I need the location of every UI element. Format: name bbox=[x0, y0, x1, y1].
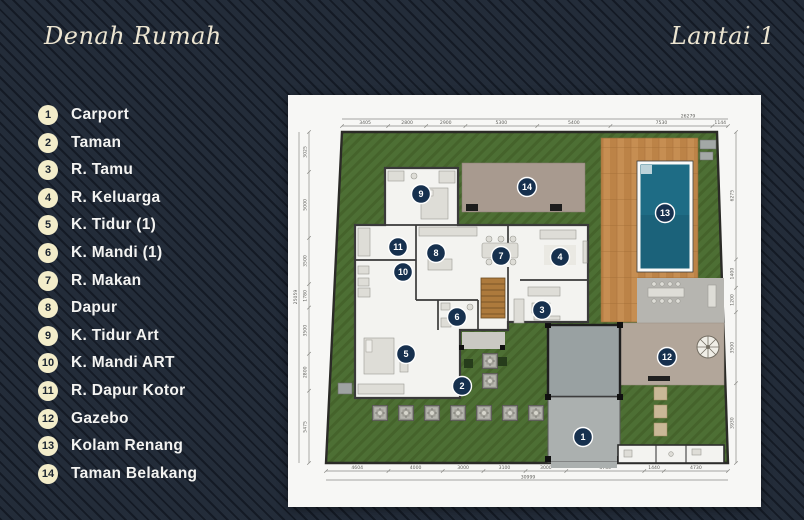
legend-label: R. Dapur Kotor bbox=[71, 382, 185, 400]
legend-label: R. Tamu bbox=[71, 161, 133, 179]
svg-text:2800: 2800 bbox=[303, 366, 309, 378]
svg-text:11: 11 bbox=[393, 242, 403, 252]
svg-text:4000: 4000 bbox=[410, 465, 422, 471]
svg-text:6: 6 bbox=[454, 312, 459, 322]
legend-item-8: 8Dapur bbox=[38, 298, 197, 318]
legend-number-badge: 1 bbox=[38, 105, 58, 125]
floor-label: Lantai 1 bbox=[671, 22, 775, 50]
legend-label: Taman bbox=[71, 134, 121, 152]
room-marker-14: 14 bbox=[518, 178, 537, 197]
legend-number-badge: 11 bbox=[38, 381, 58, 401]
svg-text:5475: 5475 bbox=[303, 421, 309, 433]
svg-text:5000: 5000 bbox=[303, 199, 309, 211]
page-background: Denah Rumah Lantai 1 1Carport2Taman3R. T… bbox=[0, 0, 804, 520]
legend-item-13: 13Kolam Renang bbox=[38, 436, 197, 456]
legend-label: Taman Belakang bbox=[71, 465, 197, 483]
legend-label: Carport bbox=[71, 106, 129, 124]
garage bbox=[548, 325, 620, 397]
svg-text:3930: 3930 bbox=[730, 417, 736, 429]
floor-plan: 3405280029005300540075301144262794604400… bbox=[288, 95, 761, 507]
room-marker-7: 7 bbox=[492, 247, 511, 266]
room-marker-5: 5 bbox=[397, 345, 416, 364]
legend-label: K. Tidur Art bbox=[71, 327, 159, 345]
floor-plan-sheet: 3405280029005300540075301144262794604400… bbox=[288, 95, 761, 507]
svg-text:4730: 4730 bbox=[690, 465, 702, 471]
legend-item-6: 6K. Mandi (1) bbox=[38, 243, 197, 263]
gazebo-icon bbox=[697, 336, 719, 358]
planter-box bbox=[466, 204, 478, 211]
legend-label: Gazebo bbox=[71, 410, 129, 428]
room-marker-13: 13 bbox=[656, 204, 675, 223]
svg-text:5: 5 bbox=[403, 349, 408, 359]
entrance-porch bbox=[459, 332, 505, 350]
legend-label: R. Makan bbox=[71, 272, 141, 290]
legend-number-badge: 10 bbox=[38, 353, 58, 373]
svg-text:1200: 1200 bbox=[730, 294, 736, 306]
legend-item-7: 7R. Makan bbox=[38, 271, 197, 291]
staircase bbox=[481, 278, 505, 318]
legend-number-badge: 2 bbox=[38, 133, 58, 153]
room-marker-2: 2 bbox=[453, 377, 472, 396]
legend-number-badge: 9 bbox=[38, 326, 58, 346]
legend-number-badge: 8 bbox=[38, 298, 58, 318]
legend-number-badge: 5 bbox=[38, 215, 58, 235]
svg-text:3000: 3000 bbox=[540, 465, 552, 471]
legend-item-4: 4R. Keluarga bbox=[38, 188, 197, 208]
legend-item-1: 1Carport bbox=[38, 105, 197, 125]
legend-item-11: 11R. Dapur Kotor bbox=[38, 381, 197, 401]
svg-text:3500: 3500 bbox=[730, 342, 736, 354]
svg-text:1440: 1440 bbox=[648, 465, 660, 471]
svg-text:4: 4 bbox=[557, 252, 562, 262]
svg-text:3100: 3100 bbox=[499, 465, 511, 471]
legend-item-3: 3R. Tamu bbox=[38, 160, 197, 180]
svg-text:3: 3 bbox=[539, 305, 544, 315]
legend-item-9: 9K. Tidur Art bbox=[38, 326, 197, 346]
svg-text:1: 1 bbox=[580, 432, 585, 442]
svg-text:3025: 3025 bbox=[303, 146, 309, 158]
svg-text:7530: 7530 bbox=[656, 120, 668, 126]
legend-item-14: 14Taman Belakang bbox=[38, 464, 197, 484]
legend-number-badge: 14 bbox=[38, 464, 58, 484]
svg-text:2: 2 bbox=[459, 381, 464, 391]
room-marker-12: 12 bbox=[658, 348, 677, 367]
terrace-walkway bbox=[637, 278, 724, 323]
room-marker-9: 9 bbox=[412, 185, 431, 204]
svg-text:30999: 30999 bbox=[521, 475, 536, 481]
svg-text:13: 13 bbox=[660, 208, 670, 218]
room-marker-3: 3 bbox=[533, 301, 552, 320]
svg-text:7: 7 bbox=[498, 251, 503, 261]
svg-text:25059: 25059 bbox=[293, 290, 299, 305]
svg-text:5300: 5300 bbox=[495, 120, 507, 126]
pool-steps bbox=[641, 165, 652, 174]
legend-label: K. Mandi (1) bbox=[71, 244, 162, 262]
legend-number-badge: 6 bbox=[38, 243, 58, 263]
legend-label: R. Keluarga bbox=[71, 189, 160, 207]
svg-text:9: 9 bbox=[418, 189, 423, 199]
legend-number-badge: 12 bbox=[38, 409, 58, 429]
legend-label: Kolam Renang bbox=[71, 437, 183, 455]
svg-text:1400: 1400 bbox=[730, 268, 736, 280]
svg-text:3405: 3405 bbox=[359, 120, 371, 126]
svg-text:26279: 26279 bbox=[681, 114, 696, 120]
svg-text:14: 14 bbox=[522, 182, 532, 192]
svg-text:2900: 2900 bbox=[440, 120, 452, 126]
page-title: Denah Rumah bbox=[44, 22, 222, 50]
legend-item-12: 12Gazebo bbox=[38, 409, 197, 429]
legend-number-badge: 7 bbox=[38, 271, 58, 291]
legend-number-badge: 13 bbox=[38, 436, 58, 456]
service-rooms bbox=[618, 445, 724, 463]
legend-item-2: 2Taman bbox=[38, 133, 197, 153]
svg-text:10: 10 bbox=[398, 267, 408, 277]
planter-box bbox=[550, 204, 562, 211]
svg-text:3500: 3500 bbox=[303, 325, 309, 337]
svg-text:3500: 3500 bbox=[303, 255, 309, 267]
room-marker-1: 1 bbox=[574, 428, 593, 447]
garden-path-pads bbox=[654, 387, 667, 436]
legend-item-10: 10K. Mandi ART bbox=[38, 353, 197, 373]
room-marker-10: 10 bbox=[394, 263, 413, 282]
room-marker-4: 4 bbox=[551, 248, 570, 267]
svg-text:1144: 1144 bbox=[714, 120, 726, 126]
legend: 1Carport2Taman3R. Tamu4R. Keluarga5K. Ti… bbox=[38, 105, 197, 484]
legend-label: K. Mandi ART bbox=[71, 354, 175, 372]
legend-item-5: 5K. Tidur (1) bbox=[38, 215, 197, 235]
room-marker-8: 8 bbox=[427, 244, 446, 263]
legend-label: Dapur bbox=[71, 299, 117, 317]
svg-text:1780: 1780 bbox=[303, 290, 309, 302]
svg-text:5400: 5400 bbox=[568, 120, 580, 126]
svg-text:12: 12 bbox=[662, 352, 672, 362]
planter-box bbox=[648, 376, 670, 381]
driveway-apron bbox=[551, 462, 617, 468]
legend-label: K. Tidur (1) bbox=[71, 216, 156, 234]
room-marker-6: 6 bbox=[448, 308, 467, 327]
svg-text:4604: 4604 bbox=[351, 465, 363, 471]
legend-number-badge: 4 bbox=[38, 188, 58, 208]
svg-text:3000: 3000 bbox=[457, 465, 469, 471]
svg-text:2800: 2800 bbox=[401, 120, 413, 126]
svg-text:6275: 6275 bbox=[730, 190, 736, 202]
legend-number-badge: 3 bbox=[38, 160, 58, 180]
svg-text:8: 8 bbox=[433, 248, 438, 258]
room-marker-11: 11 bbox=[389, 238, 408, 257]
